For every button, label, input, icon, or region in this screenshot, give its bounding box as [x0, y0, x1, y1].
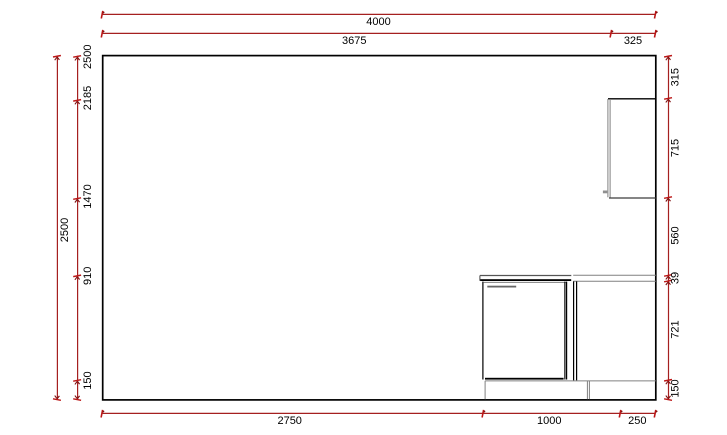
svg-text:910: 910 — [82, 267, 94, 285]
svg-text:721: 721 — [670, 320, 682, 338]
svg-text:150: 150 — [82, 371, 94, 389]
svg-text:2185: 2185 — [82, 86, 94, 110]
svg-text:250: 250 — [628, 415, 646, 427]
svg-text:715: 715 — [670, 139, 682, 157]
svg-text:315: 315 — [670, 68, 682, 86]
svg-text:2500: 2500 — [82, 44, 94, 68]
svg-text:325: 325 — [624, 35, 642, 47]
svg-text:1470: 1470 — [82, 184, 94, 208]
svg-text:150: 150 — [670, 379, 682, 397]
svg-text:560: 560 — [670, 226, 682, 244]
svg-text:4000: 4000 — [366, 16, 390, 28]
svg-text:2500: 2500 — [59, 218, 71, 242]
svg-text:3675: 3675 — [342, 35, 366, 47]
svg-text:2750: 2750 — [277, 415, 301, 427]
svg-text:39: 39 — [670, 272, 682, 284]
svg-text:1000: 1000 — [537, 415, 561, 427]
